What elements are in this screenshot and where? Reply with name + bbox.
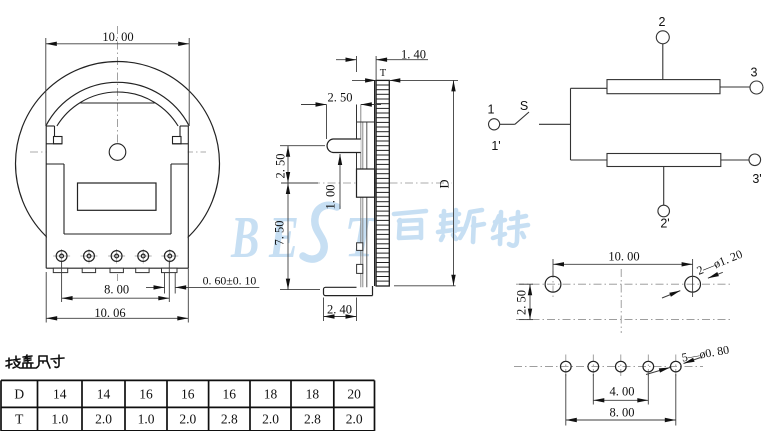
- svg-text:2. 50: 2. 50: [515, 290, 529, 315]
- svg-text:2': 2': [660, 217, 669, 231]
- svg-text:1. 00: 1. 00: [324, 185, 338, 210]
- svg-text:2. 50: 2. 50: [274, 154, 288, 179]
- svg-text:16: 16: [223, 387, 237, 402]
- svg-text:4. 00: 4. 00: [610, 385, 635, 399]
- svg-text:20: 20: [347, 387, 361, 402]
- svg-text:T: T: [380, 68, 387, 79]
- svg-text:2.0: 2.0: [262, 412, 279, 427]
- svg-text:2.8: 2.8: [221, 412, 238, 427]
- svg-text:14: 14: [53, 387, 67, 402]
- svg-text:10. 00: 10. 00: [102, 30, 133, 44]
- svg-text:2: 2: [659, 15, 666, 29]
- svg-text:1.0: 1.0: [138, 412, 155, 427]
- svg-text:T: T: [15, 412, 24, 427]
- svg-text:S: S: [520, 99, 528, 113]
- svg-text:18: 18: [264, 387, 278, 402]
- svg-text:16: 16: [181, 387, 195, 402]
- svg-text:2.0: 2.0: [179, 412, 196, 427]
- svg-text:1.0: 1.0: [51, 412, 68, 427]
- svg-text:1: 1: [488, 103, 495, 117]
- svg-text:10. 00: 10. 00: [608, 250, 639, 264]
- svg-text:0. 60±0. 10: 0. 60±0. 10: [203, 273, 257, 287]
- svg-text:3: 3: [751, 66, 758, 80]
- svg-text:7. 50: 7. 50: [273, 221, 287, 246]
- svg-text:16: 16: [139, 387, 153, 402]
- svg-text:2.8: 2.8: [304, 412, 321, 427]
- svg-text:1. 40: 1. 40: [401, 48, 426, 62]
- svg-text:2. 50: 2. 50: [328, 91, 353, 105]
- svg-text:2. 40: 2. 40: [327, 303, 352, 317]
- svg-text:3': 3': [752, 172, 761, 186]
- svg-text:D: D: [438, 179, 452, 188]
- svg-text:8. 00: 8. 00: [610, 406, 635, 420]
- svg-text:14: 14: [97, 387, 111, 402]
- svg-text:D: D: [14, 387, 24, 402]
- svg-text:B: B: [230, 205, 259, 271]
- svg-text:1': 1': [491, 139, 500, 153]
- svg-text:8. 00: 8. 00: [104, 283, 129, 297]
- svg-text:10. 06: 10. 06: [94, 306, 125, 320]
- svg-text:18: 18: [306, 387, 320, 402]
- svg-text:2.0: 2.0: [95, 412, 112, 427]
- svg-text:2.0: 2.0: [346, 412, 363, 427]
